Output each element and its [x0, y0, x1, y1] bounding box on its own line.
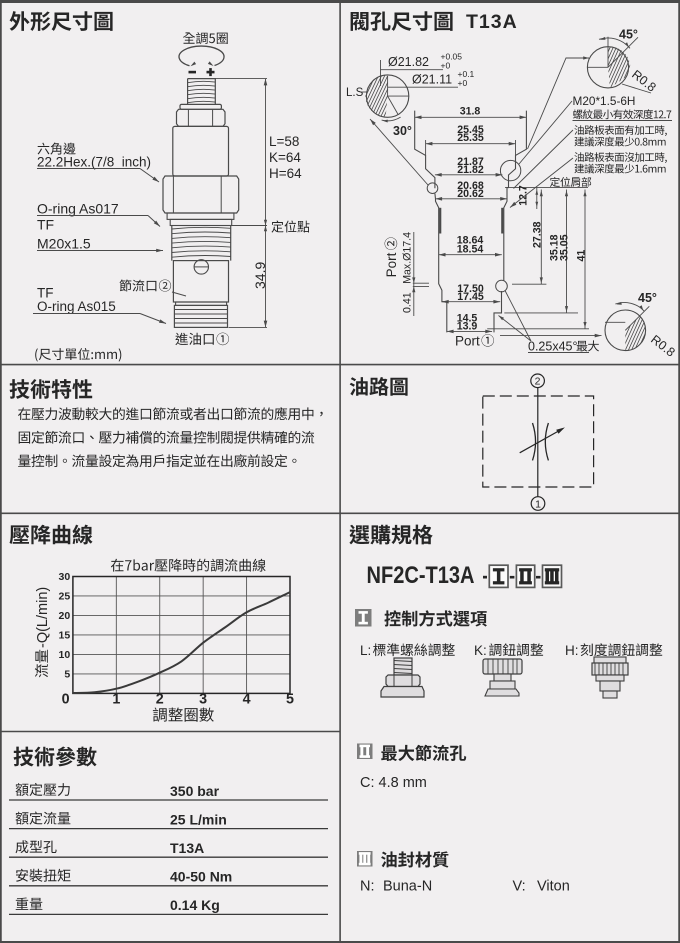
svg-text:34.9: 34.9: [252, 262, 268, 289]
svg-text:H:: H:: [565, 643, 579, 658]
svg-text:2: 2: [535, 376, 541, 388]
svg-text:350 bar: 350 bar: [170, 783, 220, 799]
svg-text:H=64: H=64: [269, 166, 302, 181]
svg-text:0.14 Kg: 0.14 Kg: [170, 897, 220, 913]
svg-text:4: 4: [243, 692, 251, 708]
svg-text:25.35: 25.35: [457, 132, 484, 144]
svg-text:+0: +0: [441, 61, 451, 71]
svg-text:0.25x45°: 0.25x45°: [528, 340, 577, 354]
svg-text:TF: TF: [37, 217, 54, 233]
svg-text:0: 0: [62, 692, 70, 708]
svg-text:5: 5: [64, 669, 70, 681]
svg-text:L.S: L.S: [346, 87, 364, 99]
svg-text:10: 10: [59, 649, 71, 661]
svg-text:Max.Ø17.4: Max.Ø17.4: [402, 232, 414, 284]
svg-text:35.05: 35.05: [559, 234, 571, 261]
svg-text:-Q(L/min): -Q(L/min): [35, 587, 51, 648]
svg-text:12.7: 12.7: [518, 185, 530, 206]
svg-text:25: 25: [59, 591, 71, 603]
svg-text:0.41: 0.41: [402, 292, 414, 313]
svg-text:22.2Hex.(7/8 inch): 22.2Hex.(7/8 inch): [37, 155, 151, 170]
svg-text:Buna-N: Buna-N: [383, 879, 432, 895]
svg-text:2: 2: [156, 692, 164, 708]
svg-text:Port: Port: [455, 334, 480, 349]
svg-text:30: 30: [59, 571, 71, 583]
svg-text:27.38: 27.38: [532, 221, 544, 248]
svg-text:T13A: T13A: [170, 840, 204, 856]
svg-text:Ø21.82: Ø21.82: [388, 55, 429, 69]
svg-text:15: 15: [59, 630, 71, 642]
svg-text:20: 20: [59, 610, 71, 622]
svg-text:30°: 30°: [393, 124, 412, 138]
svg-text:31.8: 31.8: [460, 106, 481, 118]
svg-text:K:: K:: [474, 643, 487, 658]
svg-text:17.45: 17.45: [457, 291, 484, 303]
svg-text:20.62: 20.62: [457, 188, 484, 200]
svg-text:M20*1.5-6H: M20*1.5-6H: [573, 94, 636, 108]
svg-text:25 L/min: 25 L/min: [170, 811, 227, 827]
svg-text:NF2C-T13A: NF2C-T13A: [367, 562, 475, 589]
svg-text:41: 41: [576, 250, 588, 262]
svg-text:+0: +0: [458, 78, 468, 88]
svg-text:T13A: T13A: [466, 11, 518, 33]
svg-text:V:: V:: [513, 879, 526, 895]
svg-text:1: 1: [112, 692, 120, 708]
svg-text:N:: N:: [360, 879, 375, 895]
svg-text:1: 1: [535, 498, 541, 510]
svg-text:L=58: L=58: [269, 134, 299, 149]
svg-text:21.82: 21.82: [457, 164, 484, 176]
svg-text:40-50 Nm: 40-50 Nm: [170, 869, 232, 885]
svg-text:Ø21.11: Ø21.11: [412, 73, 452, 87]
svg-text:M20x1.5: M20x1.5: [37, 236, 91, 252]
svg-text:18.54: 18.54: [457, 244, 484, 256]
svg-text:C: 4.8 mm: C: 4.8 mm: [360, 775, 427, 791]
svg-text:O-ring As015: O-ring As015: [37, 299, 116, 314]
svg-text:3: 3: [199, 692, 207, 708]
svg-text:Port: Port: [384, 252, 399, 277]
svg-text:45°: 45°: [619, 28, 638, 42]
svg-text:13.9: 13.9: [457, 321, 478, 333]
svg-text:Viton: Viton: [537, 879, 570, 895]
svg-text:L:: L:: [360, 643, 371, 658]
svg-text:45°: 45°: [638, 291, 657, 305]
svg-text:K=64: K=64: [269, 150, 301, 165]
svg-text:5: 5: [286, 692, 294, 708]
svg-text:O-ring As017: O-ring As017: [37, 201, 119, 217]
